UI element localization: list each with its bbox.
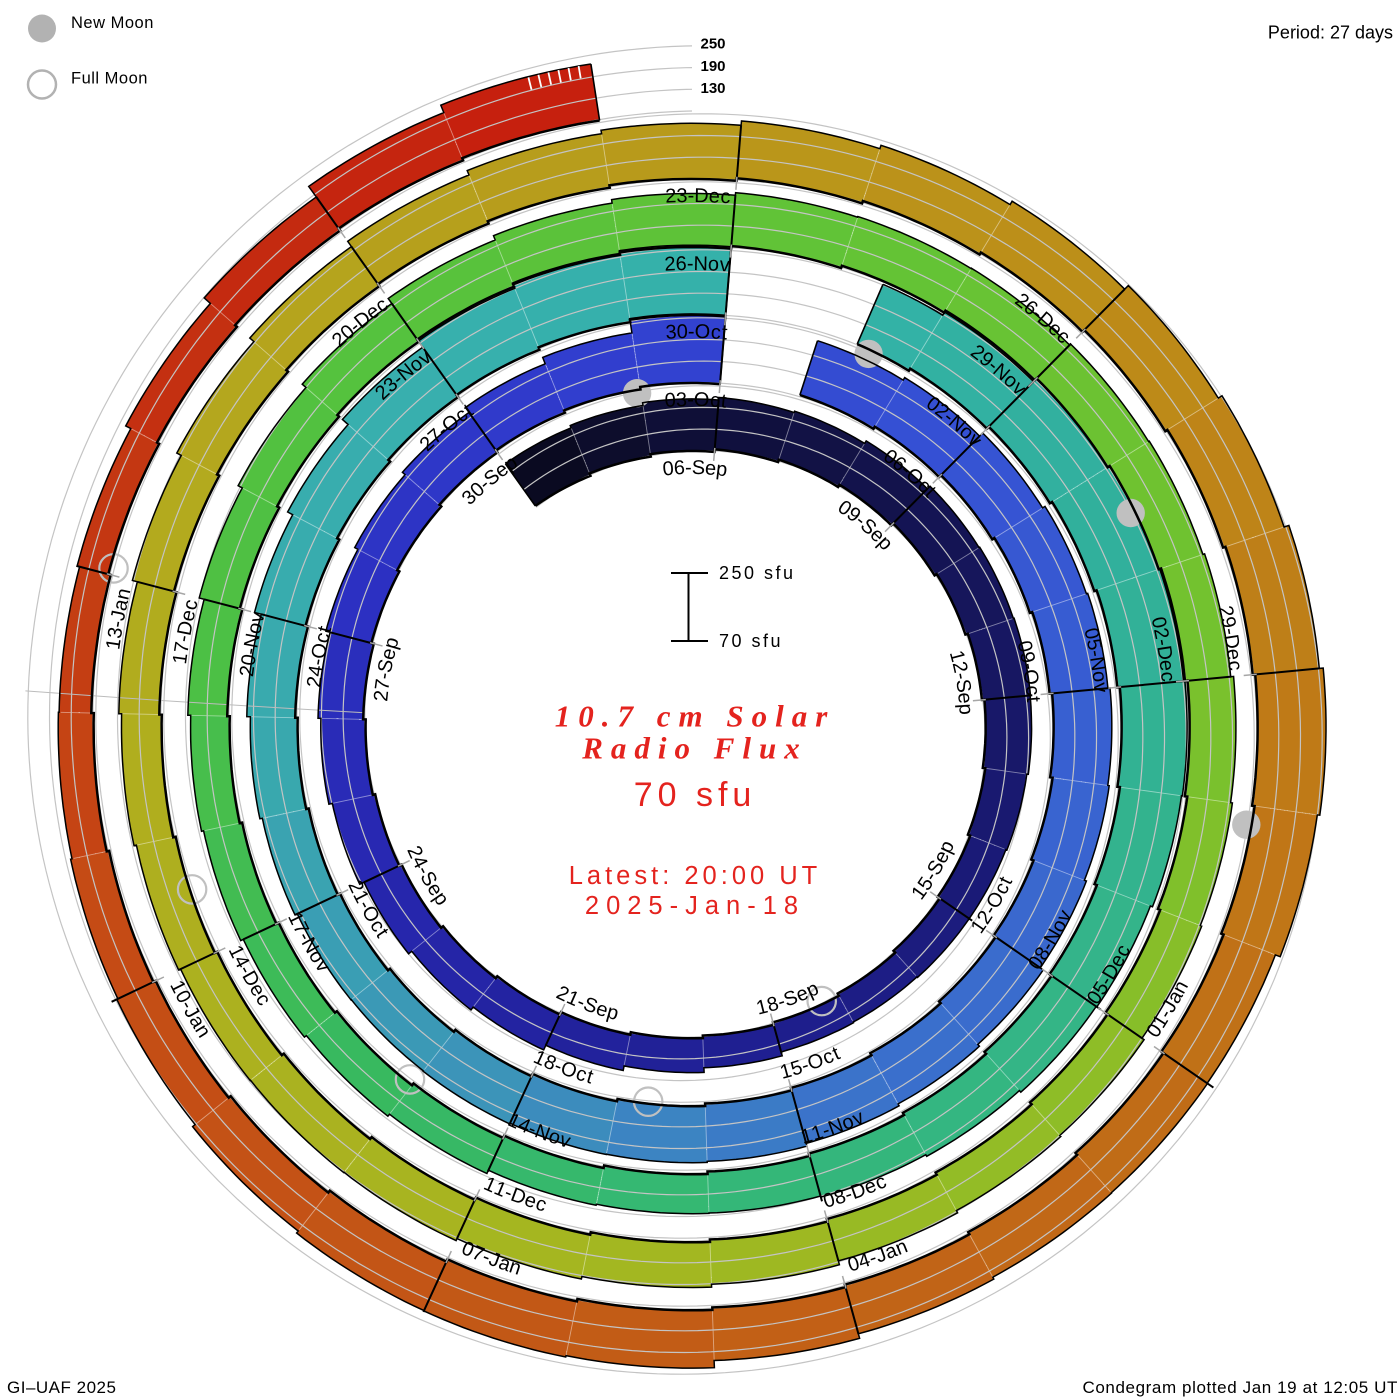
svg-text:S: S (691, 457, 705, 479)
svg-text:3: 3 (676, 185, 688, 207)
svg-text:v: v (1089, 682, 1112, 694)
svg-text:Full Moon: Full Moon (71, 70, 148, 88)
svg-text:New Moon: New Moon (71, 14, 154, 32)
svg-text:70 sfu: 70 sfu (719, 631, 783, 651)
svg-text:e: e (708, 185, 720, 207)
svg-text:6: 6 (675, 253, 687, 275)
svg-text:190: 190 (700, 58, 725, 75)
svg-text:2: 2 (665, 185, 677, 207)
svg-text:70 sfu: 70 sfu (634, 776, 757, 814)
svg-text:6: 6 (673, 457, 685, 480)
svg-text:250 sfu: 250 sfu (719, 563, 796, 583)
svg-text:o: o (707, 253, 719, 275)
svg-text:c: c (709, 389, 721, 412)
svg-text:v: v (719, 254, 731, 277)
svg-text:c: c (720, 186, 731, 209)
svg-text:3: 3 (665, 321, 677, 344)
svg-text:130: 130 (700, 80, 725, 97)
svg-text:Period: 27 days: Period: 27 days (1268, 23, 1393, 43)
svg-text:2025-Jan-18: 2025-Jan-18 (585, 892, 805, 920)
svg-text:O: O (1018, 668, 1042, 687)
svg-text:GI–UAF 2025: GI–UAF 2025 (7, 1378, 116, 1397)
svg-text:Latest: 20:00 UT: Latest: 20:00 UT (569, 862, 822, 890)
svg-text:250: 250 (700, 36, 725, 53)
svg-text:Radio Flux: Radio Flux (581, 731, 808, 766)
svg-text:Condegram plotted Jan 19 at 12: Condegram plotted Jan 19 at 12:05 UT (1082, 1378, 1398, 1397)
svg-text:c: c (710, 321, 721, 344)
svg-text:O: O (693, 389, 709, 411)
svg-text:10.7 cm Solar: 10.7 cm Solar (555, 699, 836, 734)
svg-text:p: p (954, 703, 977, 716)
svg-text:O: O (694, 321, 710, 343)
svg-text:D: D (694, 185, 709, 207)
svg-text:0: 0 (664, 389, 677, 412)
svg-text:N: N (693, 253, 708, 275)
svg-text:0: 0 (676, 321, 688, 343)
svg-text:2: 2 (664, 253, 676, 275)
svg-text:3: 3 (676, 389, 688, 411)
